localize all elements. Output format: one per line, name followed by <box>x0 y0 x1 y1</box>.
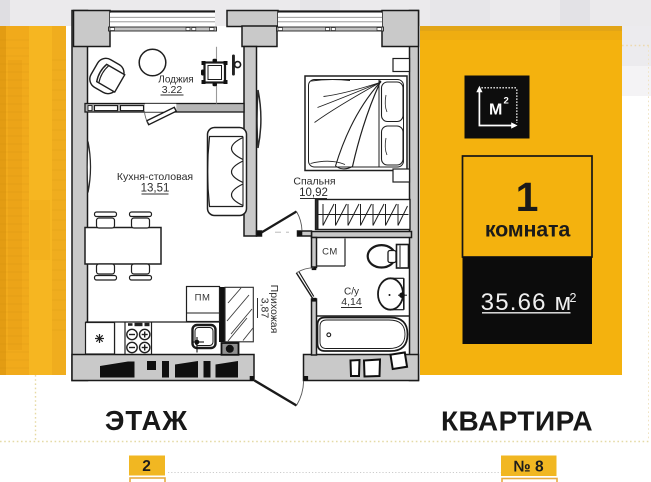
svg-text:М: М <box>489 102 502 119</box>
svg-text:13,51: 13,51 <box>141 183 170 195</box>
svg-text:3.22: 3.22 <box>162 84 183 96</box>
svg-text:3,87: 3,87 <box>259 298 271 319</box>
svg-text:2: 2 <box>570 291 577 305</box>
svg-text:4,14: 4,14 <box>341 296 362 308</box>
svg-text:2: 2 <box>142 458 151 475</box>
svg-text:КВАРТИРА: КВАРТИРА <box>441 406 593 437</box>
svg-text:СМ: СМ <box>322 247 338 258</box>
svg-text:комната: комната <box>485 218 572 242</box>
svg-text:10,92: 10,92 <box>299 187 328 199</box>
svg-text:35.66 м: 35.66 м <box>481 289 573 316</box>
svg-text:Спальня: Спальня <box>293 176 335 188</box>
svg-text:№ 8: № 8 <box>513 459 544 476</box>
svg-text:1: 1 <box>516 174 539 220</box>
svg-text:Кухня-столовая: Кухня-столовая <box>117 171 193 183</box>
svg-text:ПМ: ПМ <box>195 293 211 304</box>
svg-text:ЭТАЖ: ЭТАЖ <box>105 405 188 436</box>
svg-text:2: 2 <box>504 96 509 107</box>
